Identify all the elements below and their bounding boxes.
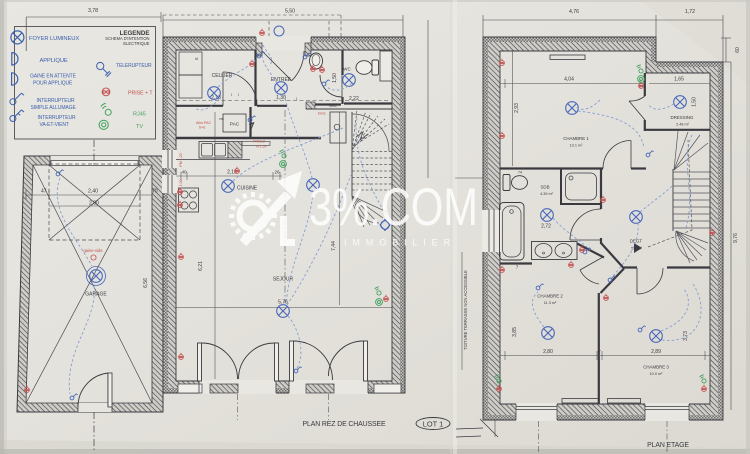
svg-text:4,04: 4,04 — [564, 77, 574, 83]
svg-text:6,56: 6,56 — [143, 278, 149, 288]
svg-text:1,50: 1,50 — [692, 97, 698, 107]
svg-text:APPLIQUE: APPLIQUE — [40, 58, 68, 64]
svg-text:TOITURE TERRASSE NON ACCESSIBL: TOITURE TERRASSE NON ACCESSIBLE — [463, 270, 468, 350]
svg-text:GAINE EN ATTENTE: GAINE EN ATTENTE — [30, 74, 77, 80]
svg-text:2,22: 2,22 — [349, 96, 359, 102]
svg-text:ELECTRIQUE: ELECTRIQUE — [123, 41, 149, 46]
svg-text:3,85: 3,85 — [512, 327, 518, 337]
svg-text:4,76: 4,76 — [569, 9, 579, 15]
svg-text:3,78: 3,78 — [88, 8, 98, 14]
svg-text:INTERRUPTEUR: INTERRUPTEUR — [38, 115, 76, 121]
svg-text:2,93: 2,93 — [514, 103, 520, 113]
svg-text:IMMOBILIER: IMMOBILIER — [344, 238, 456, 249]
svg-text:3,73: 3,73 — [683, 331, 689, 341]
svg-text:4.39 m²: 4.39 m² — [540, 192, 554, 196]
svg-text:I: I — [231, 93, 232, 97]
svg-text:Alim.PAC: Alim.PAC — [196, 121, 212, 125]
svg-text:vm: vm — [219, 117, 224, 121]
svg-text:2,40: 2,40 — [88, 189, 98, 195]
svg-text:40: 40 — [181, 170, 187, 175]
svg-text:3%.COM: 3%.COM — [309, 178, 478, 237]
svg-text:CUISINE: CUISINE — [237, 186, 258, 192]
svg-text:WC: WC — [343, 67, 351, 72]
svg-text:POUR APPLIQUE: POUR APPLIQUE — [33, 80, 73, 86]
svg-text:CHAMBRE 1: CHAMBRE 1 — [563, 136, 589, 141]
svg-text:SIMPLE ALLUMAGE: SIMPLE ALLUMAGE — [31, 105, 77, 111]
svg-text:I: I — [296, 97, 297, 101]
svg-text:2,89: 2,89 — [651, 349, 661, 355]
svg-text:6+E: 6+E — [199, 126, 206, 130]
svg-text:INTERRUPTEUR: INTERRUPTEUR — [37, 98, 75, 104]
svg-text:26: 26 — [274, 170, 280, 175]
svg-text:TELERUPTEUR: TELERUPTEUR — [116, 63, 152, 69]
svg-text:2,80: 2,80 — [543, 349, 553, 355]
svg-text:N.1,30: N.1,30 — [256, 145, 267, 149]
svg-text:fond.: fond. — [318, 112, 326, 116]
svg-text:47: 47 — [41, 189, 47, 195]
svg-text:LOT 1: LOT 1 — [423, 420, 443, 429]
svg-text:GARAGE: GARAGE — [85, 292, 107, 298]
svg-text:11.3 m²: 11.3 m² — [544, 301, 557, 305]
svg-text:10.0 m²: 10.0 m² — [650, 372, 664, 376]
svg-text:VA-ET-VIENT: VA-ET-VIENT — [40, 122, 69, 128]
svg-text:RJ45: RJ45 — [133, 112, 146, 118]
svg-text:6,21: 6,21 — [198, 261, 204, 271]
svg-text:2.48 m²: 2.48 m² — [676, 123, 690, 127]
svg-text:TV: TV — [136, 124, 143, 130]
svg-text:SDB: SDB — [540, 185, 549, 190]
svg-text:1,65: 1,65 — [674, 77, 684, 83]
svg-text:CHAMBRE 3: CHAMBRE 3 — [643, 365, 669, 370]
svg-text:CHAMBRE 2: CHAMBRE 2 — [537, 294, 563, 299]
svg-text:PLAN REZ DE CHAUSSEE: PLAN REZ DE CHAUSSEE — [302, 421, 386, 428]
svg-text:DRESSING: DRESSING — [671, 115, 695, 120]
svg-text:1,72: 1,72 — [685, 9, 695, 15]
svg-text:PRISE + T: PRISE + T — [128, 90, 153, 96]
svg-text:70: 70 — [152, 189, 158, 195]
svg-text:PAC: PAC — [230, 122, 240, 128]
svg-text:2,00: 2,00 — [89, 201, 99, 207]
svg-text:fond.: fond. — [329, 104, 337, 108]
svg-text:7,44: 7,44 — [331, 241, 337, 251]
svg-text:9,76: 9,76 — [733, 233, 739, 243]
svg-text:FRIGO: FRIGO — [253, 140, 265, 144]
svg-text:1,50: 1,50 — [332, 73, 338, 83]
svg-text:PLAN ETAGE: PLAN ETAGE — [647, 442, 689, 449]
svg-text:ld: ld — [195, 57, 198, 61]
svg-text:gaine-vide: gaine-vide — [83, 248, 103, 253]
svg-text:FOYER LUMINEUX: FOYER LUMINEUX — [29, 36, 79, 42]
svg-text:74: 74 — [518, 171, 522, 175]
svg-text:5,50: 5,50 — [285, 9, 295, 15]
svg-text:60: 60 — [735, 47, 741, 53]
svg-text:13.1 m²: 13.1 m² — [570, 144, 584, 148]
svg-text:PM 1,20: PM 1,20 — [179, 153, 183, 166]
svg-text:I: I — [238, 93, 239, 97]
svg-text:2,72: 2,72 — [541, 224, 551, 230]
